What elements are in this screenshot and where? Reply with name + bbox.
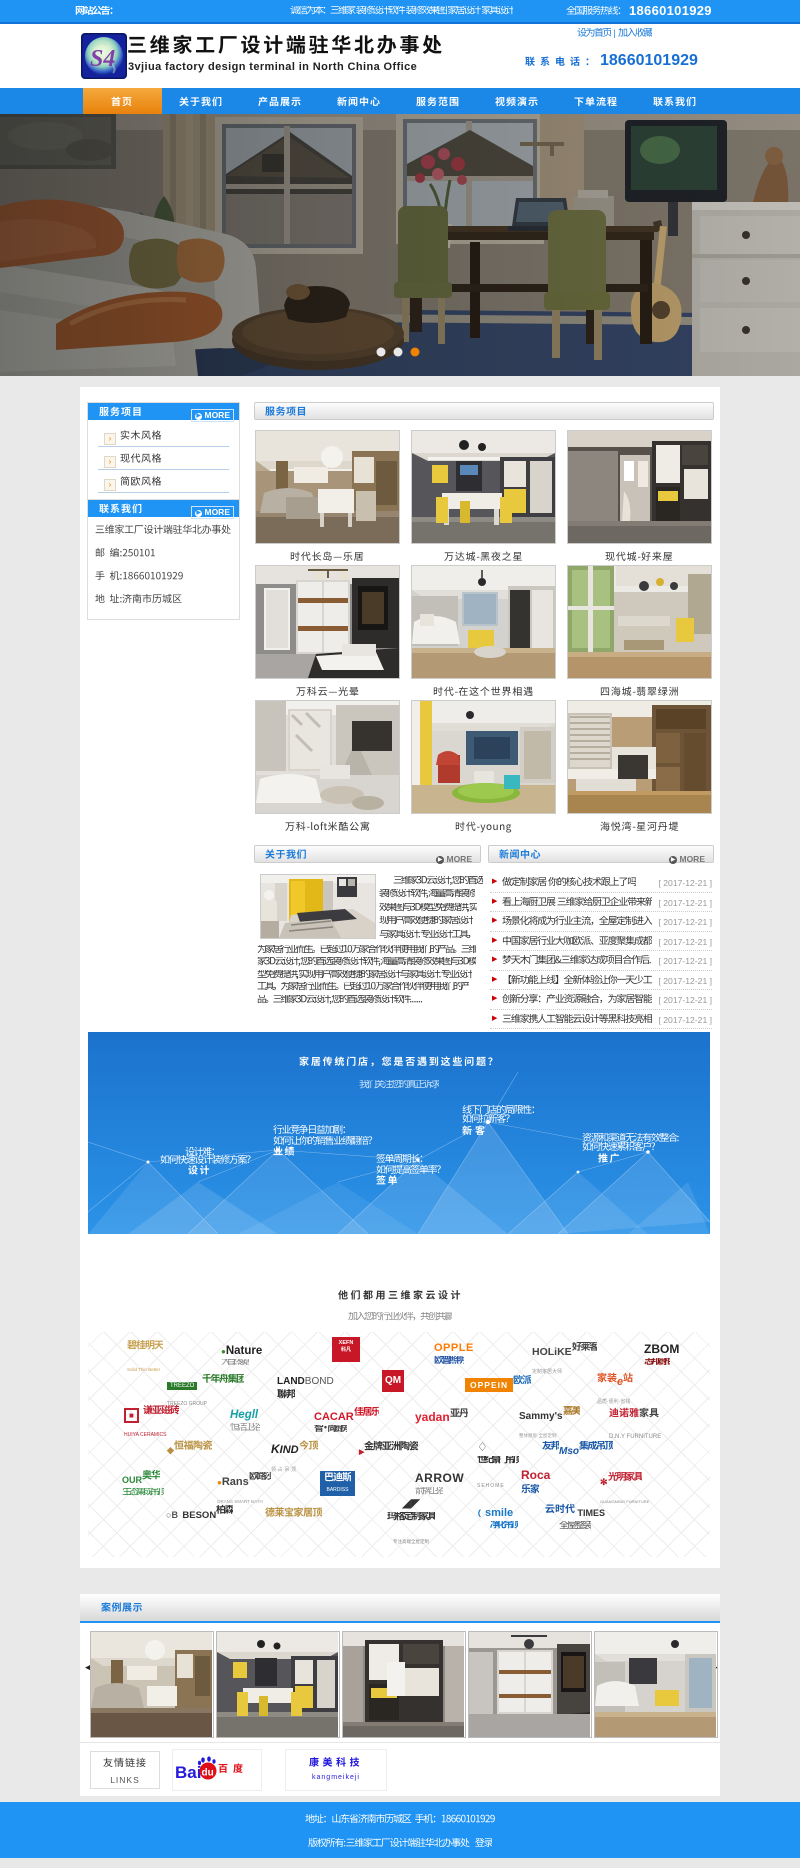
svg-text:Bai: Bai	[175, 1763, 201, 1782]
svg-text:du: du	[202, 1768, 214, 1779]
svg-text:S4: S4	[90, 46, 115, 72]
